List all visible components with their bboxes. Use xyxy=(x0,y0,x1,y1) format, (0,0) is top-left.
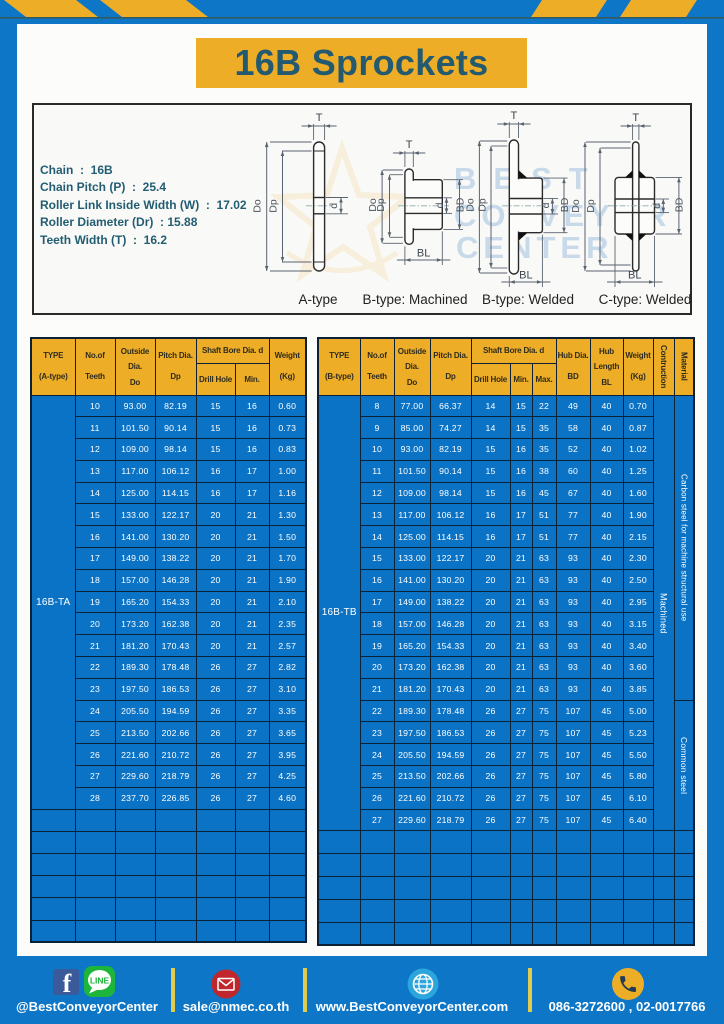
svg-text:Dp: Dp xyxy=(375,198,387,212)
svg-text:f: f xyxy=(63,969,72,998)
svg-text:Dp: Dp xyxy=(585,199,597,213)
svg-text:d: d xyxy=(651,203,663,209)
svg-text:C-type: Welded: C-type: Welded xyxy=(599,292,692,307)
svg-text:B-type: Welded: B-type: Welded xyxy=(482,292,574,307)
svg-text:T: T xyxy=(406,139,413,151)
svg-text:LINE: LINE xyxy=(90,976,110,986)
svg-text:BL: BL xyxy=(417,248,430,260)
svg-text:d: d xyxy=(540,202,552,208)
svg-text:BL: BL xyxy=(519,270,532,282)
svg-text:d: d xyxy=(328,203,340,209)
svg-text:BD: BD xyxy=(674,197,686,212)
svg-text:T: T xyxy=(316,112,323,124)
svg-text:Dp: Dp xyxy=(268,199,280,213)
svg-text:d: d xyxy=(434,202,446,208)
svg-text:Do: Do xyxy=(570,199,582,213)
svg-text:Dp: Dp xyxy=(477,198,489,212)
svg-text:BL: BL xyxy=(628,270,641,282)
svg-text:A-type: A-type xyxy=(298,292,337,307)
svg-text:T: T xyxy=(632,112,639,124)
svg-text:T: T xyxy=(511,110,518,122)
svg-text:Do: Do xyxy=(252,199,264,213)
svg-text:Do: Do xyxy=(465,198,477,212)
svg-text:B-type: Machined: B-type: Machined xyxy=(362,292,467,307)
